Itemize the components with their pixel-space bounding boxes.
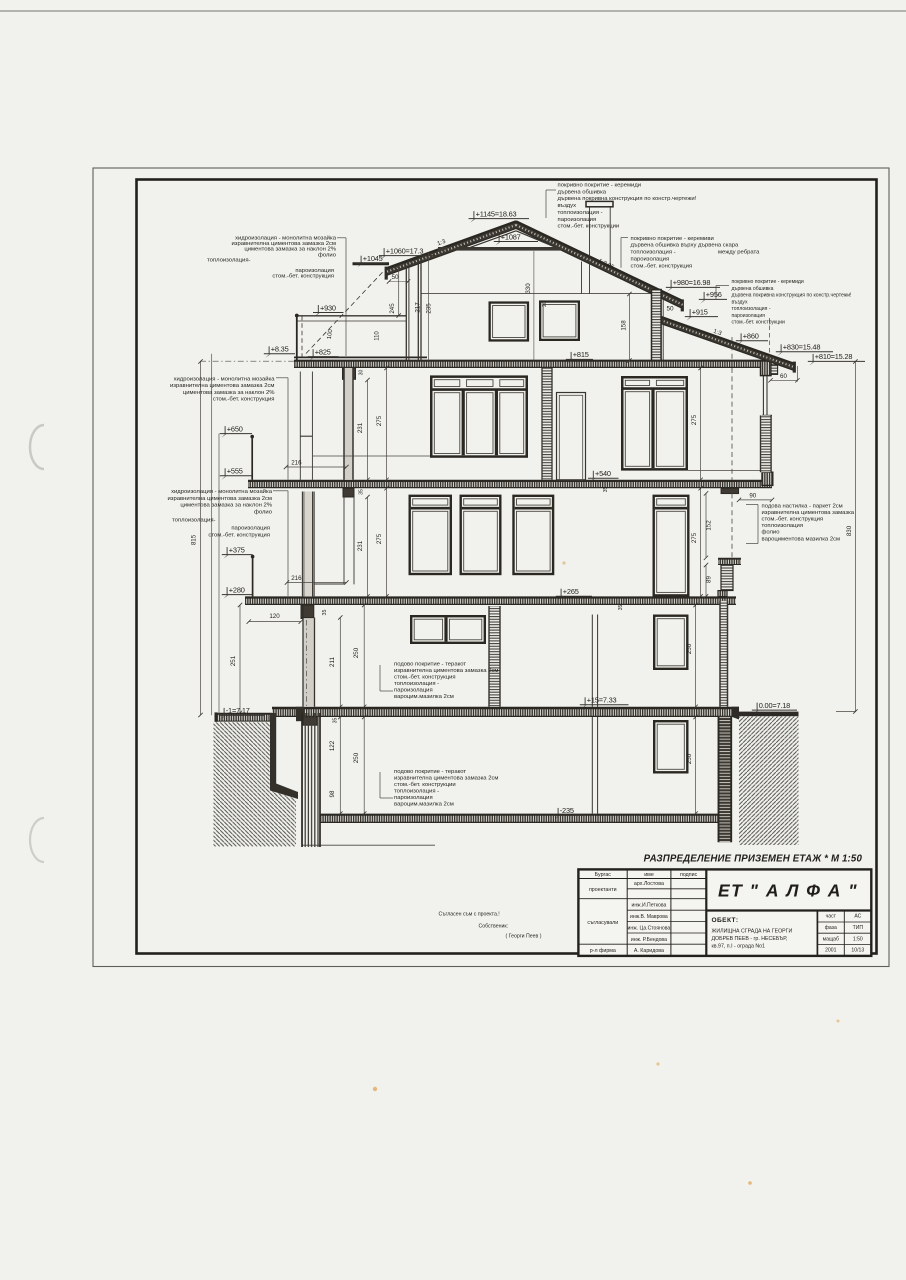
svg-text:дървена обшивка: дървена обшивка — [558, 189, 607, 195]
svg-text:подово покритие - теракот: подово покритие - теракот — [394, 769, 466, 775]
svg-text:235: 235 — [426, 303, 433, 314]
svg-text:инж.В. Маврова: инж.В. Маврова — [630, 914, 668, 920]
svg-text:изравнителна циментова замазка: изравнителна циментова замазка 2см — [394, 775, 499, 781]
svg-text:830: 830 — [846, 525, 853, 536]
svg-text:пароизолация: пароизолация — [631, 257, 670, 263]
svg-text:250: 250 — [686, 753, 693, 764]
svg-text:пароизолация: пароизолация — [231, 526, 270, 532]
svg-text:250: 250 — [686, 643, 693, 654]
svg-text:изравнителна циментова замазка: изравнителна циментова замазка 2см — [394, 668, 499, 674]
svg-text:стом.-бет. конструкция: стом.-бет. конструкция — [631, 263, 693, 269]
svg-text:+956: +956 — [706, 290, 722, 299]
svg-text:35: 35 — [618, 605, 624, 611]
svg-text:ET " А Л Ф А ": ET " А Л Ф А " — [718, 881, 858, 901]
svg-text:въздух: въздух — [558, 203, 577, 209]
svg-text:дървена обшивка: дървена обшивка — [732, 286, 774, 292]
svg-text:( Георги Пеев ): ( Георги Пеев ) — [506, 934, 542, 940]
svg-text:231: 231 — [357, 540, 364, 551]
svg-text:1:50: 1:50 — [853, 936, 863, 942]
svg-text:фаза: фаза — [825, 925, 837, 931]
svg-text:стом.-бет. конструкция: стом.-бет. конструкция — [213, 397, 275, 403]
svg-text:216: 216 — [291, 460, 302, 467]
svg-text:35: 35 — [333, 718, 339, 724]
svg-text:топлоизолация -: топлоизолация - — [732, 306, 771, 312]
svg-text:+1087: +1087 — [501, 232, 521, 241]
svg-text:пароизолация: пароизолация — [394, 688, 433, 694]
svg-text:фолио: фолио — [254, 509, 273, 515]
svg-text:35: 35 — [359, 489, 365, 495]
svg-text:вароциментова мазилка 2см: вароциментова мазилка 2см — [762, 536, 841, 542]
svg-text:90: 90 — [749, 492, 756, 499]
svg-text:+810=15.28: +810=15.28 — [815, 352, 853, 361]
svg-text:+1145=18.63: +1145=18.63 — [476, 209, 517, 218]
svg-text:р-л фирма: р-л фирма — [590, 948, 616, 954]
svg-text:покривно покритие - керемиди: покривно покритие - керемиди — [558, 183, 642, 189]
svg-text:+650: +650 — [227, 424, 243, 433]
svg-text:топлоизолация -: топлоизолация - — [394, 788, 439, 794]
svg-text:хидроизолация - монолитна моза: хидроизолация - монолитна мозайка — [174, 375, 276, 382]
svg-text:ТИП: ТИП — [853, 925, 864, 931]
svg-text:АС: АС — [854, 914, 861, 920]
svg-text:топлоизолация -: топлоизолация - — [558, 210, 603, 216]
svg-text:60: 60 — [780, 373, 787, 380]
svg-text:подпис: подпис — [680, 872, 698, 878]
svg-text:211: 211 — [329, 657, 336, 667]
svg-text:+980=16.98: +980=16.98 — [673, 278, 711, 287]
svg-text:пароизолация: пароизолация — [558, 217, 597, 223]
svg-text:въздух: въздух — [732, 299, 748, 305]
svg-text:мащаб: мащаб — [823, 936, 839, 942]
svg-text:89: 89 — [706, 576, 713, 583]
svg-text:-235: -235 — [560, 806, 574, 815]
svg-text:275: 275 — [691, 532, 698, 543]
svg-text:35: 35 — [322, 610, 328, 616]
svg-text:топлоизолация-: топлоизолация- — [172, 517, 216, 523]
svg-text:217: 217 — [415, 302, 422, 313]
svg-text:+8.35: +8.35 — [271, 345, 289, 354]
svg-text:вароцим.мазилка 2см: вароцим.мазилка 2см — [394, 694, 454, 700]
svg-text:стом.-бет. конструкция: стом.-бет. конструкция — [208, 532, 270, 538]
svg-text:+1045: +1045 — [363, 254, 383, 263]
svg-text:име: име — [644, 872, 654, 878]
svg-text:покривно покритие - керемиви: покривно покритие - керемиви — [631, 236, 714, 242]
svg-text:ДОБРЕВ ПЕЕВ - гр. НЕСЕБЪР,: ДОБРЕВ ПЕЕВ - гр. НЕСЕБЪР, — [712, 936, 788, 942]
svg-text:250: 250 — [353, 647, 360, 658]
svg-text:+555: +555 — [227, 467, 243, 476]
svg-text:Бургас: Бургас — [595, 872, 612, 878]
svg-text:РАЗПРЕДЕЛЕНИЕ ПРИЗЕМЕН ЕТАЖ *: РАЗПРЕДЕЛЕНИЕ ПРИЗЕМЕН ЕТАЖ * М 1:50 — [644, 854, 863, 865]
svg-text:250: 250 — [353, 752, 360, 763]
svg-text:Съгласен съм с проекта.!: Съгласен съм с проекта.! — [439, 912, 500, 918]
svg-text:дървена покривна конструкция п: дървена покривна конструкция по констр.ч… — [558, 196, 697, 202]
svg-text:231: 231 — [357, 422, 364, 433]
svg-text:топлоизолация -: топлоизолация - — [394, 681, 439, 687]
svg-text:+540: +540 — [595, 469, 611, 478]
svg-text:А. Каридова: А. Каридова — [634, 948, 664, 954]
svg-text:245: 245 — [389, 303, 396, 314]
svg-text:ЖИЛИЩНА СГРАДА НА ГЕОРГИ: ЖИЛИЩНА СГРАДА НА ГЕОРГИ — [712, 929, 793, 935]
svg-text:2001: 2001 — [825, 948, 836, 954]
svg-text:между ребрата: между ребрата — [718, 250, 760, 256]
svg-text:вароцим.мазилка 2см: вароцим.мазилка 2см — [394, 802, 454, 808]
svg-text:275: 275 — [376, 533, 383, 544]
svg-text:216: 216 — [291, 575, 302, 582]
svg-text:+815: +815 — [573, 350, 589, 359]
svg-text:част: част — [826, 914, 837, 920]
svg-text:изравнителна циментова замазка: изравнителна циментова замазка — [762, 510, 855, 516]
svg-text:251: 251 — [230, 655, 237, 666]
svg-text:стом.-бет. конструкции: стом.-бет. конструкции — [558, 224, 620, 230]
svg-text:фолио: фолио — [318, 252, 337, 258]
svg-text:+825: +825 — [315, 347, 331, 356]
svg-text:110: 110 — [375, 331, 381, 341]
svg-text:330: 330 — [525, 283, 532, 294]
svg-text:10/13: 10/13 — [851, 948, 864, 954]
svg-text:+265: +265 — [563, 587, 579, 596]
svg-text:30: 30 — [359, 370, 365, 376]
svg-text:стом.-бет. конструкция: стом.-бет. конструкция — [762, 517, 824, 523]
svg-text:50: 50 — [667, 306, 675, 313]
svg-text:+375: +375 — [229, 545, 245, 554]
svg-text:120: 120 — [269, 613, 280, 620]
svg-text:топлоизолация -: топлоизолация - — [631, 250, 676, 256]
svg-text:+1060=17.3: +1060=17.3 — [386, 246, 424, 255]
svg-text:пароизолация: пароизолация — [732, 313, 766, 319]
svg-text:+915: +915 — [692, 307, 708, 316]
svg-text:+15=7.33: +15=7.33 — [587, 696, 617, 705]
svg-text:инж. Ца.Стоянова: инж. Ца.Стоянова — [628, 925, 671, 931]
svg-text:съгласували: съгласували — [587, 920, 618, 926]
svg-text:98: 98 — [329, 790, 336, 797]
svg-text:циментова замазка за наклон 2%: циментова замазка за наклон 2% — [180, 503, 272, 509]
svg-text:815: 815 — [191, 534, 198, 545]
svg-text:стом.-бет. конструкция: стом.-бет. конструкция — [272, 273, 334, 279]
svg-text:стом.-бет. конструкция: стом.-бет. конструкция — [394, 675, 456, 681]
svg-text:дървена покривна конструкция п: дървена покривна конструкция по констр.ч… — [732, 293, 852, 299]
svg-text:+860: +860 — [743, 332, 759, 341]
svg-text:топлоизолация: топлоизолация — [762, 523, 804, 529]
svg-text:кв.97, п.I - ограда No1: кв.97, п.I - ограда No1 — [712, 943, 766, 949]
svg-text:-1=7.17: -1=7.17 — [226, 706, 250, 715]
svg-text:хидроизолация - монолитна моза: хидроизолация - монолитна мозайка — [171, 488, 273, 495]
svg-text:фолио: фолио — [762, 530, 781, 536]
svg-text:циментова замазка за наклон 2%: циментова замазка за наклон 2% — [183, 390, 275, 396]
svg-text:20: 20 — [542, 301, 548, 307]
svg-text:275: 275 — [691, 414, 698, 425]
svg-text:арх.Лостова: арх.Лостова — [634, 881, 664, 887]
svg-text:стом.-бет. конструкции: стом.-бет. конструкции — [394, 782, 456, 788]
svg-text:дървена обшивка върху дървена: дървена обшивка върху дървена скара — [631, 243, 740, 249]
svg-text:изравнителна циментова замазка: изравнителна циментова замазка 2см — [170, 383, 275, 389]
svg-text:+280: +280 — [229, 585, 245, 594]
svg-text:+930: +930 — [320, 303, 336, 312]
svg-text:+830=15.48: +830=15.48 — [783, 343, 821, 352]
svg-text:122: 122 — [329, 740, 336, 751]
svg-text:инж. Р.Бендова: инж. Р.Бендова — [631, 937, 667, 943]
svg-text:ОБЕКТ:: ОБЕКТ: — [712, 917, 739, 924]
svg-text:50: 50 — [392, 274, 400, 281]
svg-text:инж.И.Петкова: инж.И.Петкова — [631, 903, 666, 909]
svg-text:стом.-бет. конструкции: стом.-бет. конструкции — [732, 320, 786, 326]
svg-text:158: 158 — [620, 320, 627, 331]
svg-text:проектанти: проектанти — [589, 887, 617, 893]
svg-text:152: 152 — [706, 520, 713, 531]
svg-text:покривно покритие - керемиди: покривно покритие - керемиди — [732, 279, 804, 285]
svg-text:подова настилка - паркет 2см: подова настилка - паркет 2см — [762, 504, 843, 510]
svg-text:35: 35 — [603, 487, 609, 493]
svg-text:Собственик:: Собственик: — [479, 924, 509, 930]
svg-text:топлоизолация-: топлоизолация- — [207, 258, 251, 264]
svg-text:изравнителна циментова замазка: изравнителна циментова замазка 2см — [168, 496, 273, 502]
svg-text:275: 275 — [376, 415, 383, 426]
svg-text:подово покритие - теракот: подово покритие - теракот — [394, 661, 466, 667]
svg-text:пароизолация: пароизолация — [394, 795, 433, 801]
svg-text:0.00=7.18: 0.00=7.18 — [759, 701, 790, 710]
